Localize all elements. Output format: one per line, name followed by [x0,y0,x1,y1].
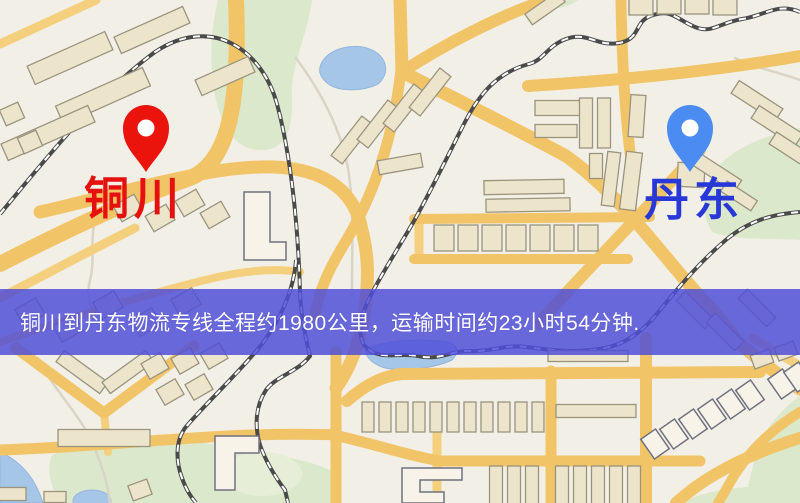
origin-city-label: 铜川 [84,176,184,221]
map-image [0,0,800,503]
destination-pin-icon [666,104,714,172]
destination-city-label: 丹东 [644,177,744,222]
destination-pin [666,104,714,177]
logistics-route-map: 铜川 丹东 铜川到丹东物流专线全程约1980公里，运输时间约23小时54分钟. [0,0,800,503]
origin-pin [122,104,170,177]
route-info-text: 铜川到丹东物流专线全程约1980公里，运输时间约23小时54分钟. [20,307,640,337]
origin-pin-icon [122,104,170,172]
route-info-banner: 铜川到丹东物流专线全程约1980公里，运输时间约23小时54分钟. [0,289,800,355]
